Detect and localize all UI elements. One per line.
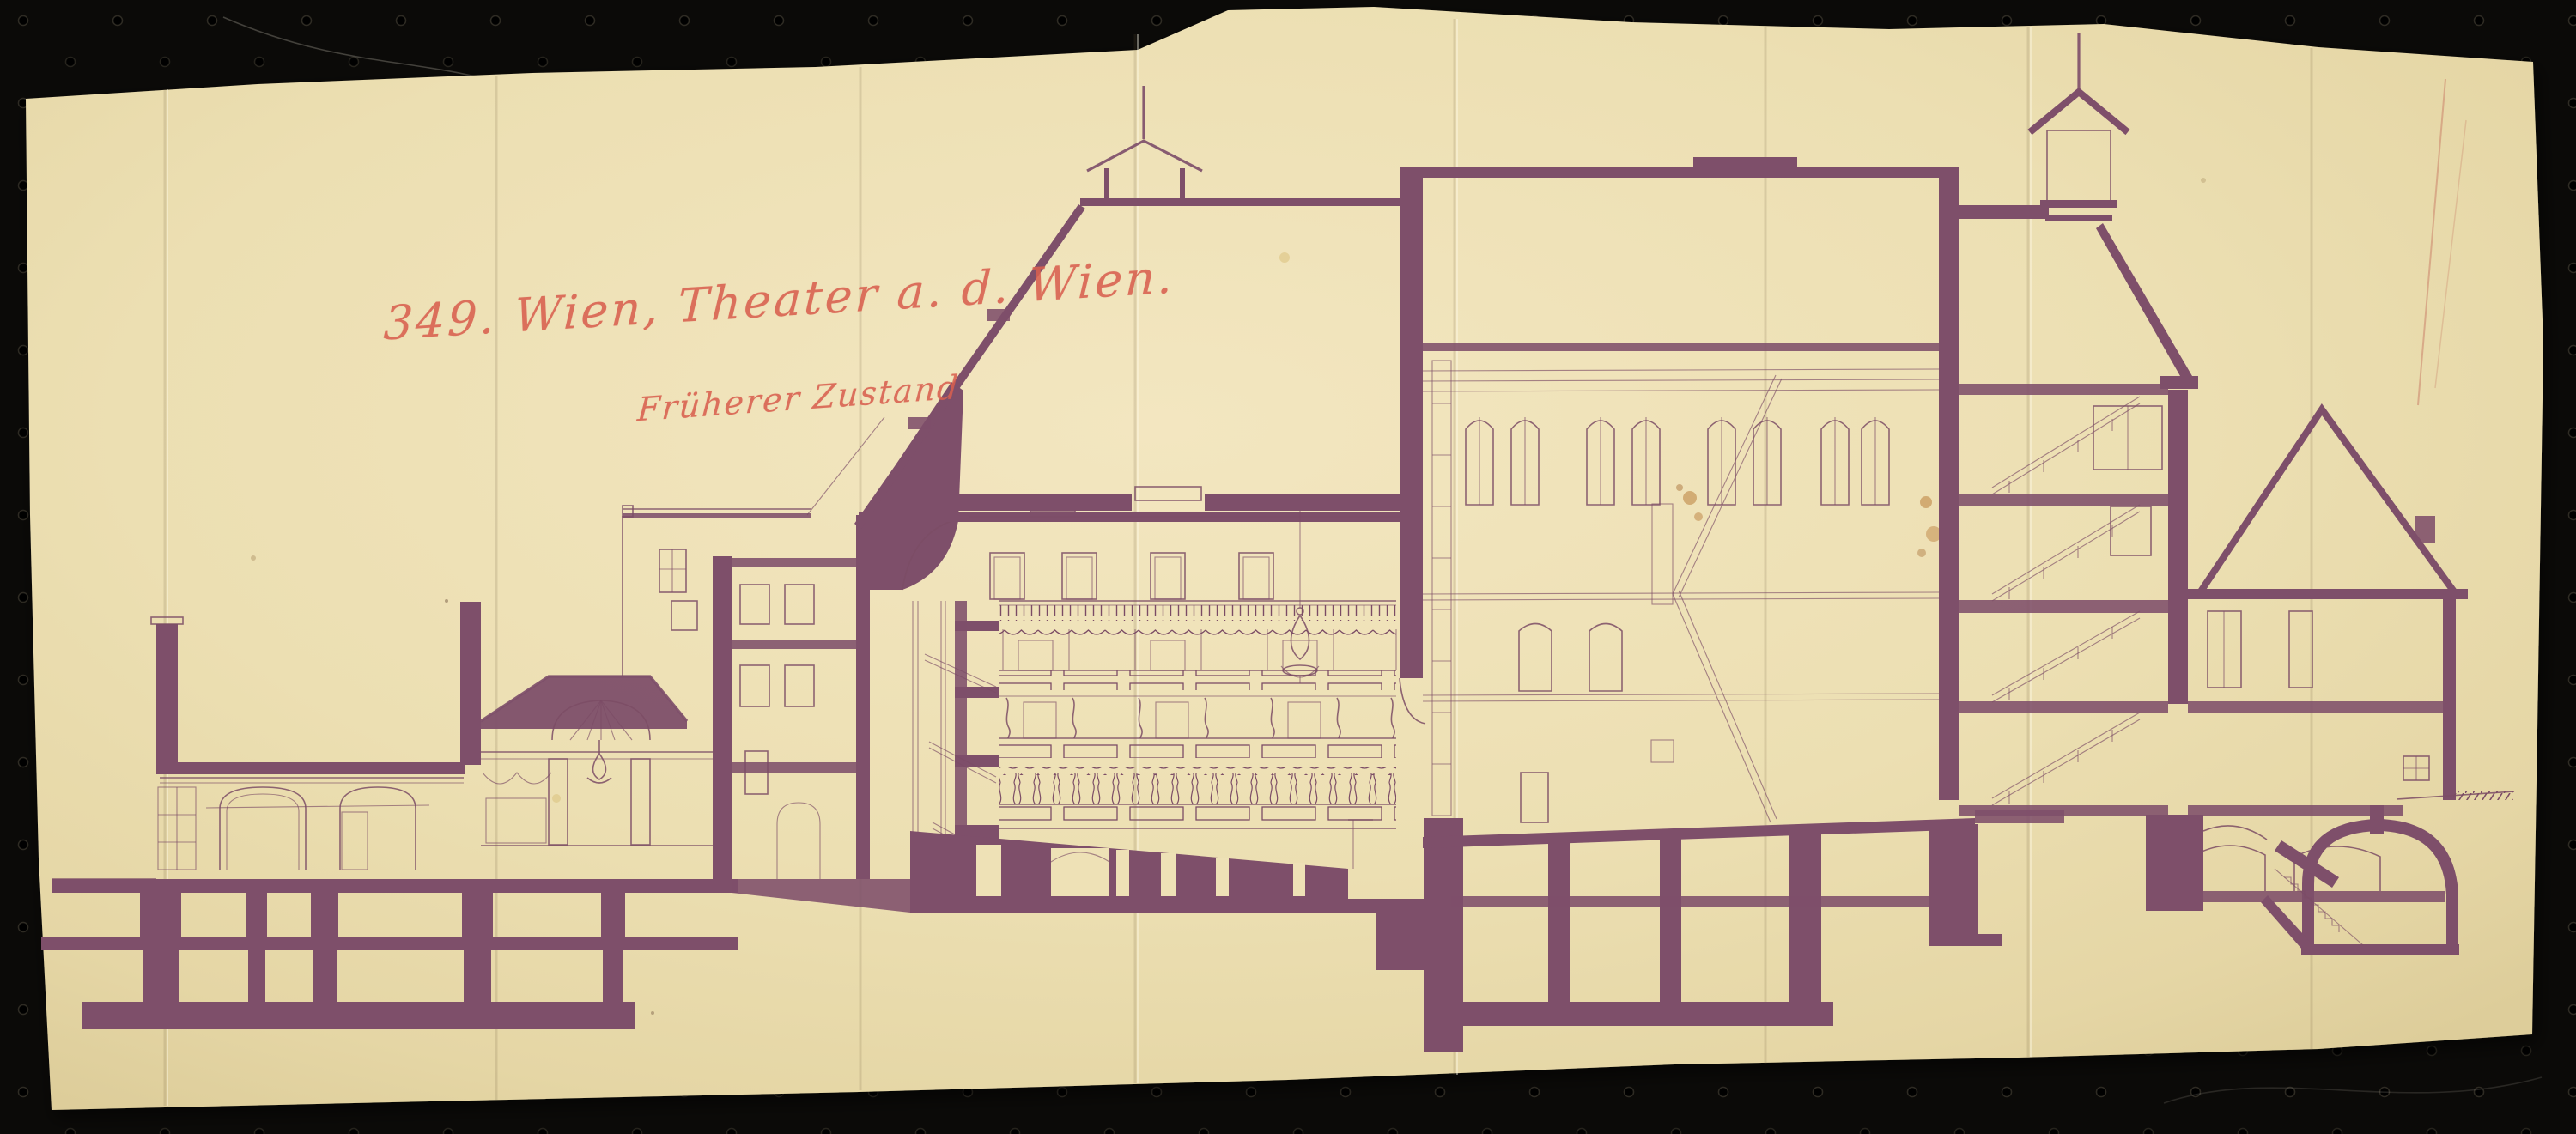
tier-boxes-lower <box>999 767 1396 828</box>
scanned-plan-page: 349. Wien, Theater a. d. Wien. Früherer … <box>0 0 2576 1134</box>
roof-dormer <box>908 417 931 429</box>
gallery-balustrade <box>999 605 1396 621</box>
stage-rear-wall <box>1939 168 1959 800</box>
fly-tower-roof <box>1409 167 1959 178</box>
roof-chimney <box>2415 516 2435 543</box>
